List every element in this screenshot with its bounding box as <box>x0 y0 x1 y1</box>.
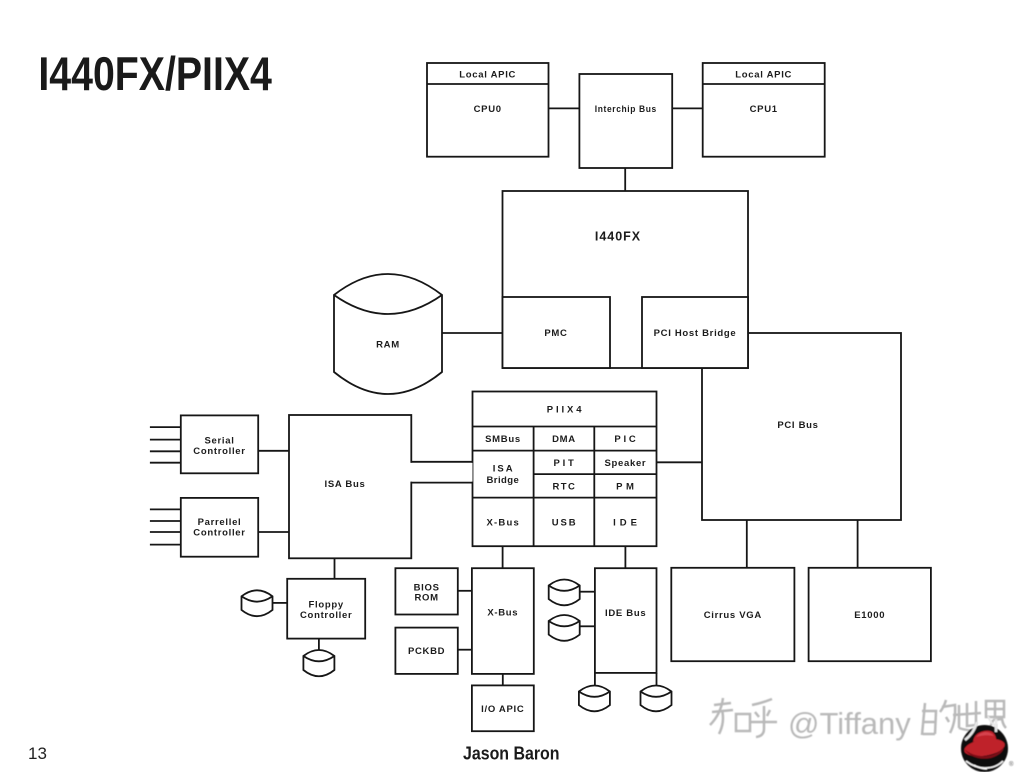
svg-text:Local APIC: Local APIC <box>459 69 516 80</box>
svg-text:RTC: RTC <box>553 481 576 492</box>
svg-text:SMBus: SMBus <box>485 434 521 445</box>
svg-text:ROM: ROM <box>414 592 438 603</box>
svg-text:I440FX/PIIX4: I440FX/PIIX4 <box>38 47 272 100</box>
svg-text:CPU0: CPU0 <box>474 104 502 115</box>
svg-text:X-Bus: X-Bus <box>487 517 520 528</box>
svg-text:Bridge: Bridge <box>487 475 520 486</box>
svg-text:@Tiffany: @Tiffany <box>788 706 911 741</box>
svg-text:Jason Baron: Jason Baron <box>463 743 560 764</box>
svg-text:Floppy: Floppy <box>309 600 344 611</box>
svg-text:I/O APIC: I/O APIC <box>481 704 524 715</box>
svg-text:Speaker: Speaker <box>604 458 646 469</box>
svg-text:Controller: Controller <box>193 446 245 457</box>
svg-text:®: ® <box>1009 761 1014 768</box>
svg-text:DMA: DMA <box>552 434 576 445</box>
svg-text:Interchip Bus: Interchip Bus <box>595 104 657 115</box>
svg-text:PIT: PIT <box>554 458 575 469</box>
svg-text:ISA Bus: ISA Bus <box>325 479 366 490</box>
svg-text:PCI Bus: PCI Bus <box>777 420 818 431</box>
svg-text:E1000: E1000 <box>854 610 885 621</box>
svg-text:IDE Bus: IDE Bus <box>605 608 646 619</box>
svg-text:Controller: Controller <box>193 527 245 538</box>
svg-text:13: 13 <box>28 744 47 763</box>
svg-text:PM: PM <box>616 481 635 492</box>
svg-text:ISA: ISA <box>493 464 514 475</box>
svg-text:RAM: RAM <box>376 340 400 351</box>
svg-text:PCI Host Bridge: PCI Host Bridge <box>654 328 737 339</box>
svg-text:CPU1: CPU1 <box>750 104 778 115</box>
svg-text:I440FX: I440FX <box>595 230 641 244</box>
svg-text:USB: USB <box>552 517 577 528</box>
svg-text:PMC: PMC <box>544 328 567 339</box>
svg-text:PCKBD: PCKBD <box>408 646 445 657</box>
svg-text:Local APIC: Local APIC <box>735 69 792 80</box>
svg-text:Controller: Controller <box>300 610 352 621</box>
svg-text:PIIX4: PIIX4 <box>547 405 583 416</box>
svg-text:Parrellel: Parrellel <box>198 517 242 528</box>
svg-text:PIC: PIC <box>614 434 636 445</box>
svg-text:Cirrus VGA: Cirrus VGA <box>704 610 762 621</box>
svg-text:X-Bus: X-Bus <box>487 608 518 619</box>
svg-text:Serial: Serial <box>204 436 234 447</box>
